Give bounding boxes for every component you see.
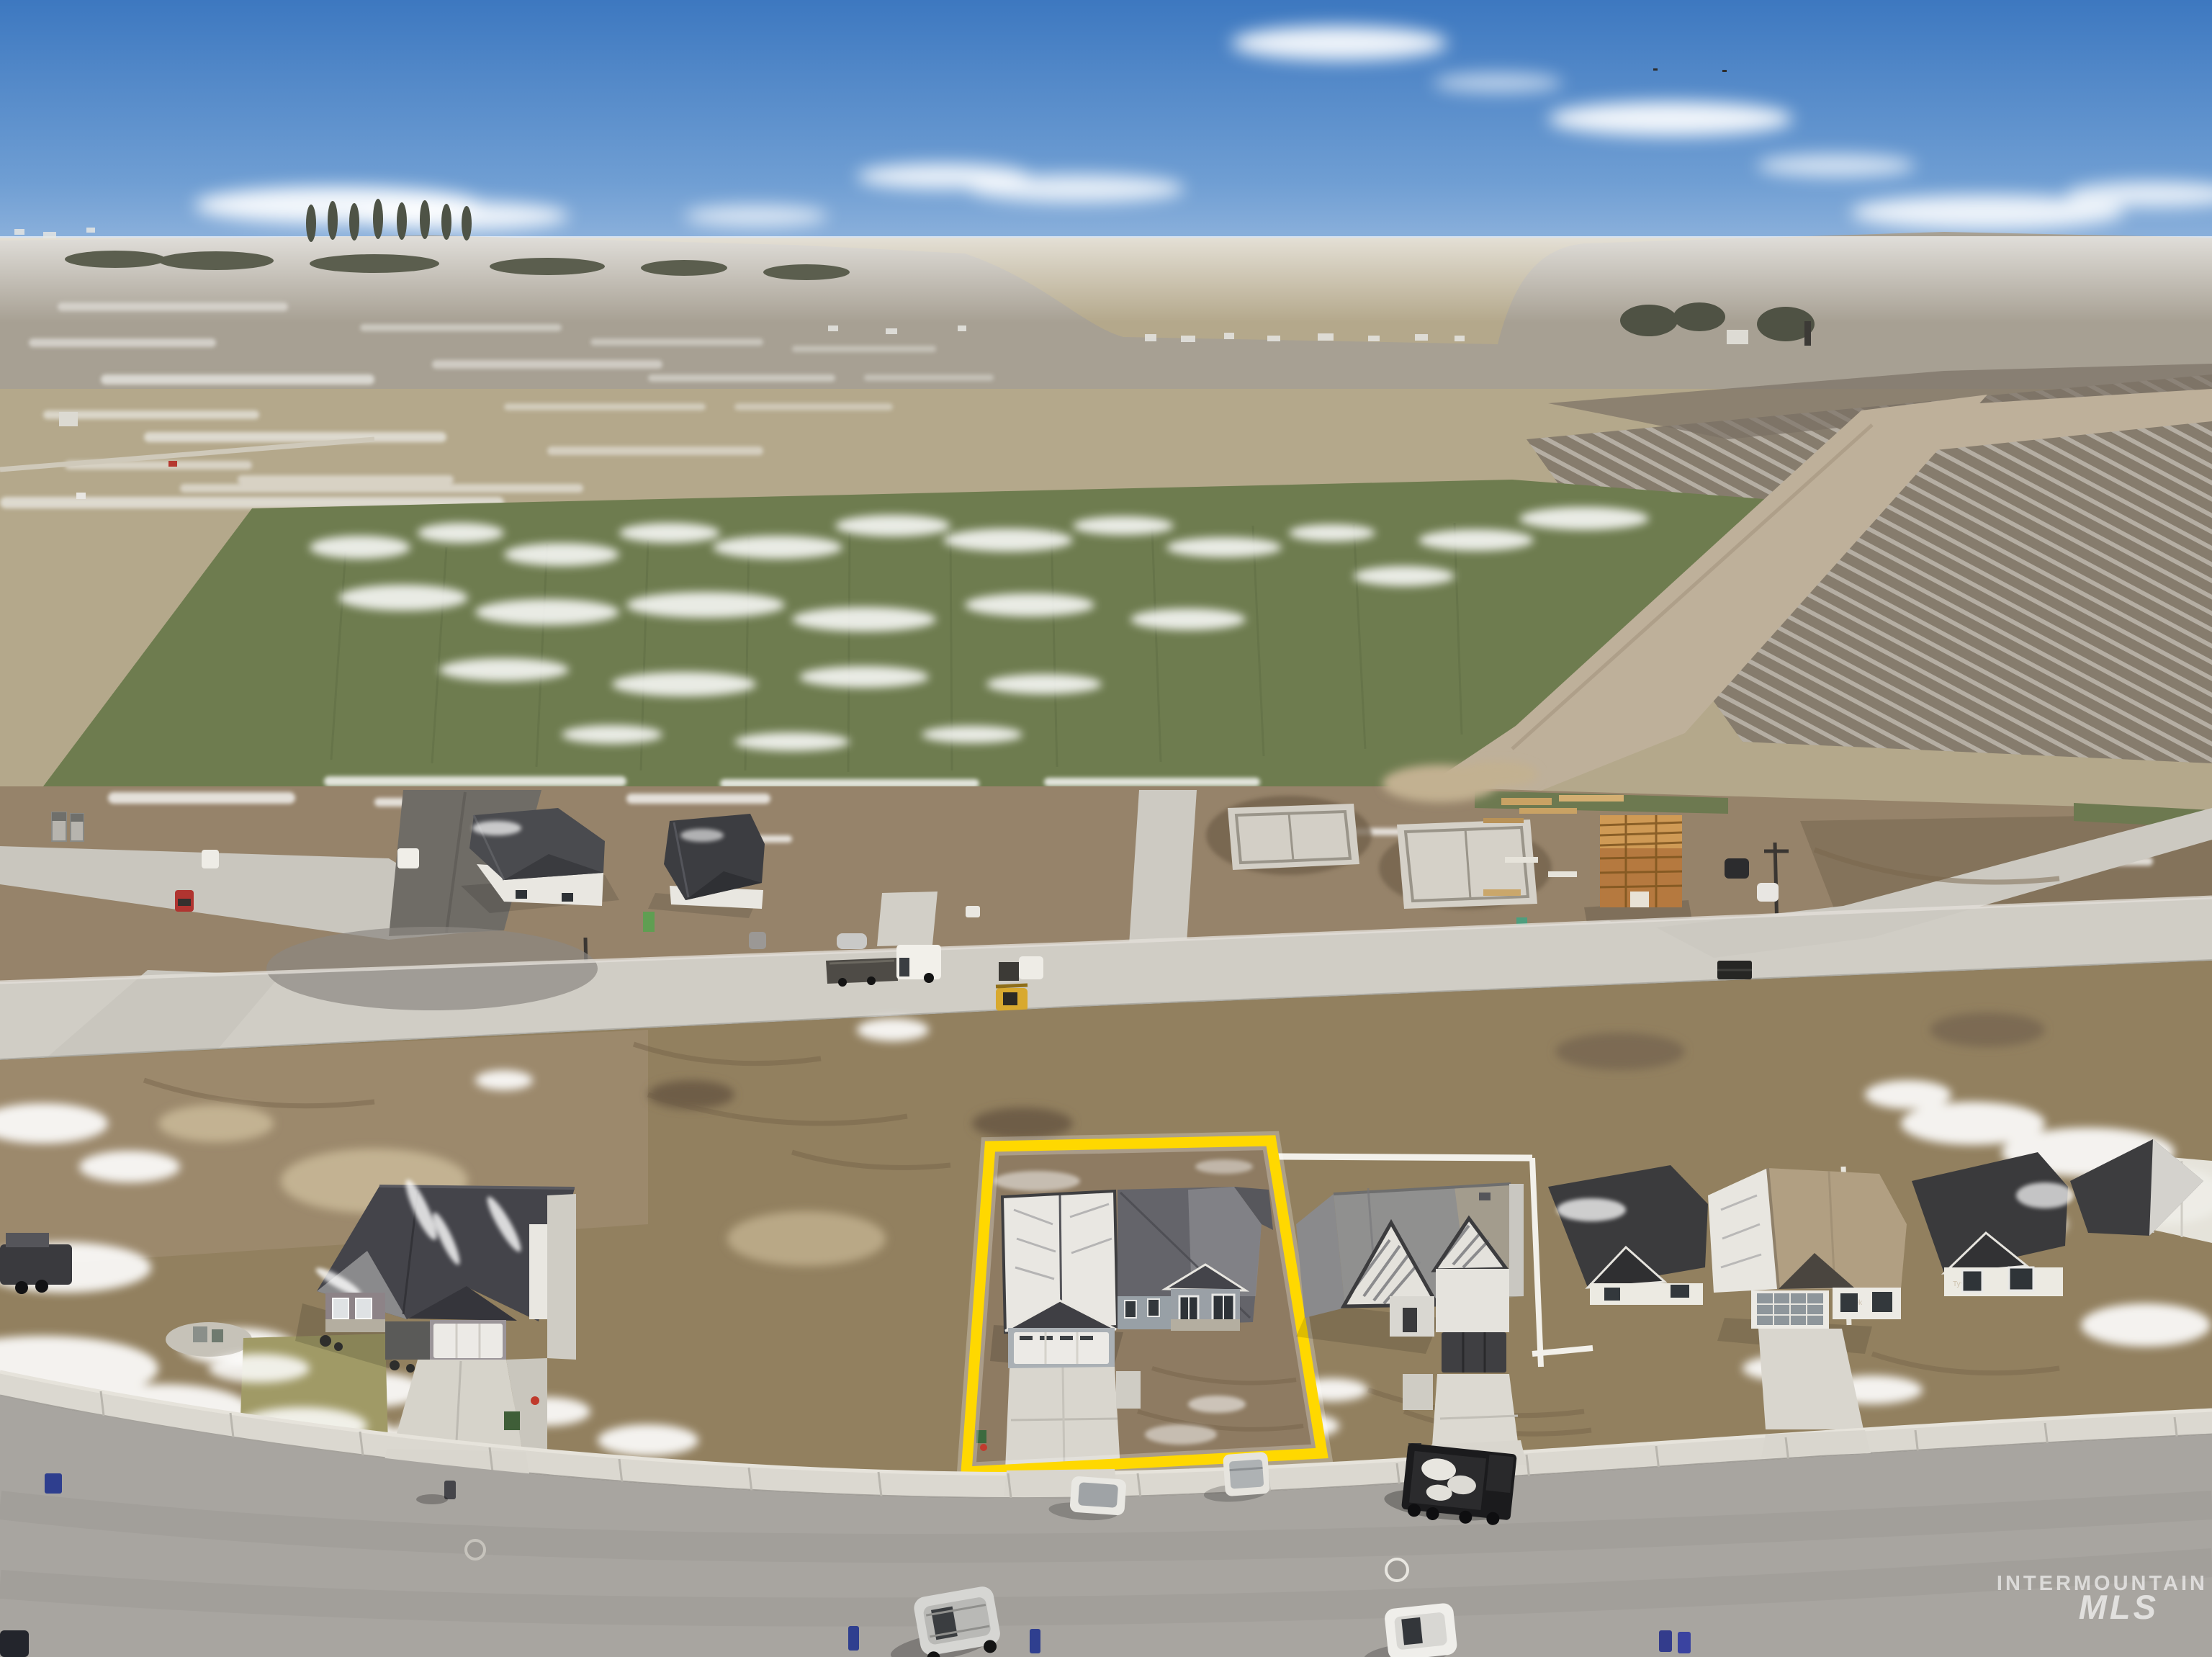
distant-shed <box>59 412 78 426</box>
concrete-foundation-1 <box>1206 796 1372 875</box>
white-car <box>1757 883 1779 902</box>
marker-flag <box>980 1444 987 1451</box>
aerial-photo: Tyvek Tyvek <box>0 0 2212 1657</box>
gravel-utility-pad <box>166 1322 252 1357</box>
distant-white-truck <box>76 493 86 499</box>
front-walk <box>1116 1371 1141 1409</box>
farm-fields <box>0 199 2212 821</box>
white-truck <box>966 906 980 917</box>
silver-car <box>837 933 867 949</box>
concrete-apron <box>877 892 938 946</box>
dark-car-corner <box>0 1630 29 1657</box>
manhole-paint-ring <box>1386 1559 1408 1581</box>
yellow-skid-steer <box>996 985 1028 1011</box>
distant-red-truck <box>168 461 177 467</box>
porta-potty-green <box>643 912 655 932</box>
subject-property <box>966 1141 1322 1472</box>
dark-garage-door <box>1442 1332 1506 1373</box>
aerial-photo-canvas: Tyvek Tyvek <box>0 0 2212 1657</box>
fire-hydrant <box>531 1396 539 1405</box>
dark-suv <box>1725 858 1749 879</box>
concrete-foundation-2 <box>1379 819 1552 910</box>
red-pickup <box>175 890 194 912</box>
wood-framed-house <box>1584 815 1692 928</box>
black-flatbed-trailer <box>1717 961 1752 979</box>
horizon-haze <box>0 236 2212 323</box>
utility-box-green <box>504 1411 520 1430</box>
watermark-line2: MLS <box>2079 1588 2159 1626</box>
gray-car <box>749 932 766 949</box>
manhole <box>466 1540 485 1559</box>
asphalt-transition <box>266 927 598 1010</box>
white-pickup <box>397 848 419 868</box>
side-street-pad <box>1129 790 1197 945</box>
white-pickup <box>202 850 219 868</box>
